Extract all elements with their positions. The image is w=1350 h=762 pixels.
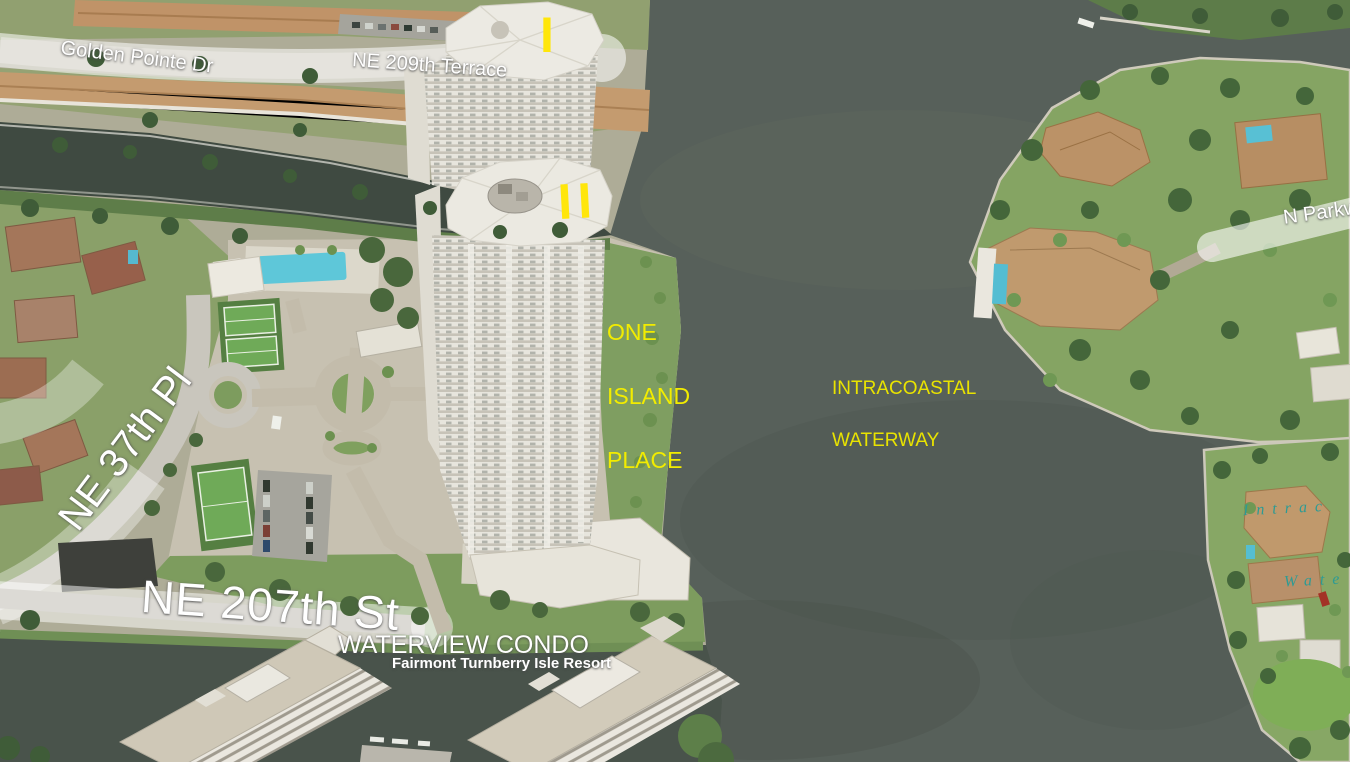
tower-two-marker: II	[557, 171, 600, 231]
place-label-one-island-place: ONE ISLAND PLACE	[607, 284, 690, 508]
one-island-line3: PLACE	[607, 444, 690, 476]
intracoastal-line1: INTRACOASTAL	[832, 376, 976, 402]
tower-one-marker: I	[540, 6, 554, 64]
aerial-map-canvas[interactable]: Golden Pointe Dr NE 209th Terrace N Park…	[0, 0, 1350, 762]
intracoastal-line2: WATERWAY	[832, 428, 976, 454]
place-label-intracoastal-waterway: INTRACOASTAL WATERWAY	[832, 350, 976, 480]
place-label-fairmont-turnberry: Fairmont Turnberry Isle Resort	[392, 656, 611, 672]
one-island-line1: ONE	[607, 316, 690, 348]
one-island-line2: ISLAND	[607, 380, 690, 412]
water-script-label-waterway: Wate	[1284, 570, 1348, 591]
